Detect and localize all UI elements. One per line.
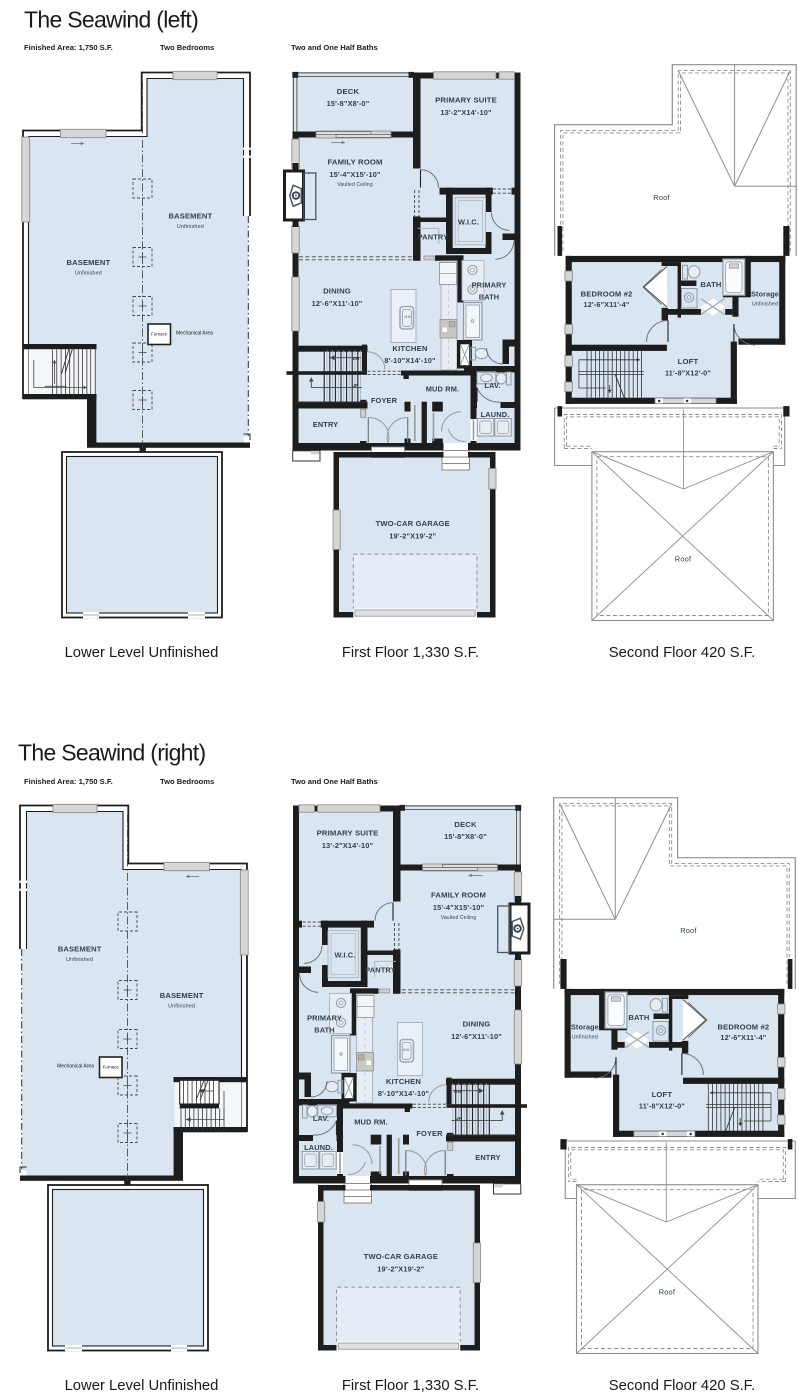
svg-text:BASEMENT: BASEMENT bbox=[168, 212, 212, 221]
svg-text:Storage: Storage bbox=[571, 1023, 599, 1032]
svg-text:TWO-CAR GARAGE: TWO-CAR GARAGE bbox=[376, 519, 450, 528]
svg-text:Unfinished: Unfinished bbox=[572, 1035, 598, 1041]
svg-text:11'-8"X12'-0": 11'-8"X12'-0" bbox=[639, 1102, 685, 1111]
svg-text:BASEMENT: BASEMENT bbox=[66, 258, 110, 267]
svg-text:BATH: BATH bbox=[479, 293, 500, 302]
svg-text:Mechanical Area: Mechanical Area bbox=[57, 1064, 94, 1070]
svg-text:Two and One Half Baths: Two and One Half Baths bbox=[291, 43, 378, 52]
svg-text:BATH: BATH bbox=[628, 1013, 649, 1022]
svg-text:The Seawind (right): The Seawind (right) bbox=[18, 740, 205, 766]
svg-text:Lower Level Unfinished: Lower Level Unfinished bbox=[65, 645, 219, 661]
svg-text:Unfinished: Unfinished bbox=[66, 957, 93, 963]
svg-text:Mechanical Area: Mechanical Area bbox=[176, 331, 213, 337]
svg-text:BEDROOM #2: BEDROOM #2 bbox=[581, 290, 633, 299]
svg-text:Lower Level Unfinished: Lower Level Unfinished bbox=[65, 1378, 219, 1394]
svg-text:DN: DN bbox=[454, 1089, 461, 1094]
svg-text:BATH: BATH bbox=[700, 280, 721, 289]
svg-text:MUD RM.: MUD RM. bbox=[354, 1118, 387, 1127]
svg-text:Unfinished: Unfinished bbox=[75, 271, 102, 277]
svg-text:W.I.C.: W.I.C. bbox=[458, 218, 479, 227]
svg-text:FOYER: FOYER bbox=[416, 1129, 443, 1138]
svg-text:Furnace: Furnace bbox=[151, 332, 168, 337]
svg-text:Roof: Roof bbox=[653, 193, 670, 202]
svg-text:MUD RM.: MUD RM. bbox=[426, 385, 459, 394]
svg-text:Furnace: Furnace bbox=[103, 1065, 120, 1070]
svg-text:12'-6"X11'-10": 12'-6"X11'-10" bbox=[451, 1032, 502, 1041]
svg-text:LOFT: LOFT bbox=[678, 357, 699, 366]
svg-text:Finished Area: 1,750 S.F.: Finished Area: 1,750 S.F. bbox=[24, 777, 113, 786]
svg-text:Unfinished: Unfinished bbox=[752, 302, 778, 308]
svg-text:19'-2"X19'-2": 19'-2"X19'-2" bbox=[377, 1265, 424, 1274]
svg-text:15'-4"X15'-10": 15'-4"X15'-10" bbox=[433, 903, 485, 912]
svg-text:13'-2"X14'-10": 13'-2"X14'-10" bbox=[440, 108, 492, 117]
svg-text:PRIMARY SUITE: PRIMARY SUITE bbox=[317, 829, 379, 838]
svg-text:FOYER: FOYER bbox=[371, 396, 398, 405]
svg-text:KITCHEN: KITCHEN bbox=[392, 344, 428, 353]
svg-text:13'-2"X14'-10": 13'-2"X14'-10" bbox=[322, 841, 374, 850]
svg-text:DECK: DECK bbox=[337, 87, 360, 96]
svg-text:LOFT: LOFT bbox=[652, 1090, 673, 1099]
svg-text:W.I.C.: W.I.C. bbox=[334, 951, 355, 960]
svg-text:Two Bedrooms: Two Bedrooms bbox=[160, 43, 214, 52]
svg-text:BEDROOM #2: BEDROOM #2 bbox=[718, 1023, 770, 1032]
svg-text:Vaulted Ceiling: Vaulted Ceiling bbox=[441, 915, 477, 921]
svg-text:12'-6"X11'-4": 12'-6"X11'-4" bbox=[720, 1033, 766, 1042]
svg-text:Unfinished: Unfinished bbox=[168, 1004, 195, 1010]
svg-text:12'-6"X11'-4": 12'-6"X11'-4" bbox=[583, 300, 629, 309]
svg-text:Roof: Roof bbox=[675, 555, 692, 564]
svg-text:KITCHEN: KITCHEN bbox=[386, 1077, 422, 1086]
svg-text:LAV.: LAV. bbox=[313, 1114, 329, 1123]
svg-text:8'-10"X14'-10": 8'-10"X14'-10" bbox=[384, 356, 436, 365]
svg-text:LAUND.: LAUND. bbox=[304, 1143, 333, 1152]
svg-text:12'-6"X11'-10": 12'-6"X11'-10" bbox=[312, 299, 363, 308]
svg-text:11'-8"X12'-0": 11'-8"X12'-0" bbox=[665, 369, 711, 378]
svg-text:Finished Area: 1,750 S.F.: Finished Area: 1,750 S.F. bbox=[24, 43, 113, 52]
svg-text:TWO-CAR GARAGE: TWO-CAR GARAGE bbox=[364, 1252, 438, 1261]
svg-text:DECK: DECK bbox=[454, 820, 477, 829]
svg-text:Two and One Half Baths: Two and One Half Baths bbox=[291, 777, 378, 786]
svg-text:ENTRY: ENTRY bbox=[475, 1153, 501, 1162]
svg-text:15'-8"X8'-0": 15'-8"X8'-0" bbox=[444, 832, 487, 841]
svg-text:PANTRY: PANTRY bbox=[365, 966, 395, 975]
svg-text:PRIMARY: PRIMARY bbox=[472, 281, 507, 290]
svg-text:19'-2"X19'-2": 19'-2"X19'-2" bbox=[389, 532, 436, 541]
svg-text:LAV.: LAV. bbox=[484, 381, 500, 390]
svg-text:PRIMARY: PRIMARY bbox=[307, 1014, 342, 1023]
svg-text:8'-10"X14'-10": 8'-10"X14'-10" bbox=[378, 1089, 430, 1098]
svg-text:UP: UP bbox=[352, 383, 358, 388]
svg-text:Roof: Roof bbox=[680, 926, 697, 935]
svg-text:Storage: Storage bbox=[751, 290, 779, 299]
svg-text:DINING: DINING bbox=[463, 1020, 491, 1029]
svg-text:Unfinished: Unfinished bbox=[177, 224, 204, 230]
svg-text:DINING: DINING bbox=[323, 287, 351, 296]
svg-text:UP: UP bbox=[455, 1116, 461, 1121]
svg-text:LAUND.: LAUND. bbox=[481, 410, 510, 419]
svg-text:BASEMENT: BASEMENT bbox=[160, 991, 204, 1000]
svg-text:FAMILY ROOM: FAMILY ROOM bbox=[431, 891, 486, 900]
svg-text:Vaulted Ceiling: Vaulted Ceiling bbox=[337, 182, 373, 188]
svg-text:Second Floor 420 S.F.: Second Floor 420 S.F. bbox=[609, 645, 755, 661]
svg-text:ENTRY: ENTRY bbox=[313, 420, 339, 429]
svg-text:First Floor 1,330 S.F.: First Floor 1,330 S.F. bbox=[342, 645, 479, 661]
svg-text:15'-8"X8'-0": 15'-8"X8'-0" bbox=[327, 99, 370, 108]
svg-text:BASEMENT: BASEMENT bbox=[58, 945, 102, 954]
svg-text:DN: DN bbox=[353, 356, 360, 361]
svg-text:Roof: Roof bbox=[659, 1288, 676, 1297]
svg-text:PRIMARY SUITE: PRIMARY SUITE bbox=[435, 96, 497, 105]
svg-text:Two Bedrooms: Two Bedrooms bbox=[160, 777, 214, 786]
svg-text:15'-4"X15'-10": 15'-4"X15'-10" bbox=[329, 170, 381, 179]
svg-text:Second Floor 420 S.F.: Second Floor 420 S.F. bbox=[609, 1378, 755, 1394]
svg-text:FAMILY ROOM: FAMILY ROOM bbox=[327, 158, 382, 167]
svg-text:First Floor 1,330 S.F.: First Floor 1,330 S.F. bbox=[342, 1378, 479, 1394]
svg-text:BATH: BATH bbox=[314, 1026, 335, 1035]
svg-text:The Seawind (left): The Seawind (left) bbox=[24, 7, 198, 33]
svg-text:PANTRY: PANTRY bbox=[418, 233, 448, 242]
